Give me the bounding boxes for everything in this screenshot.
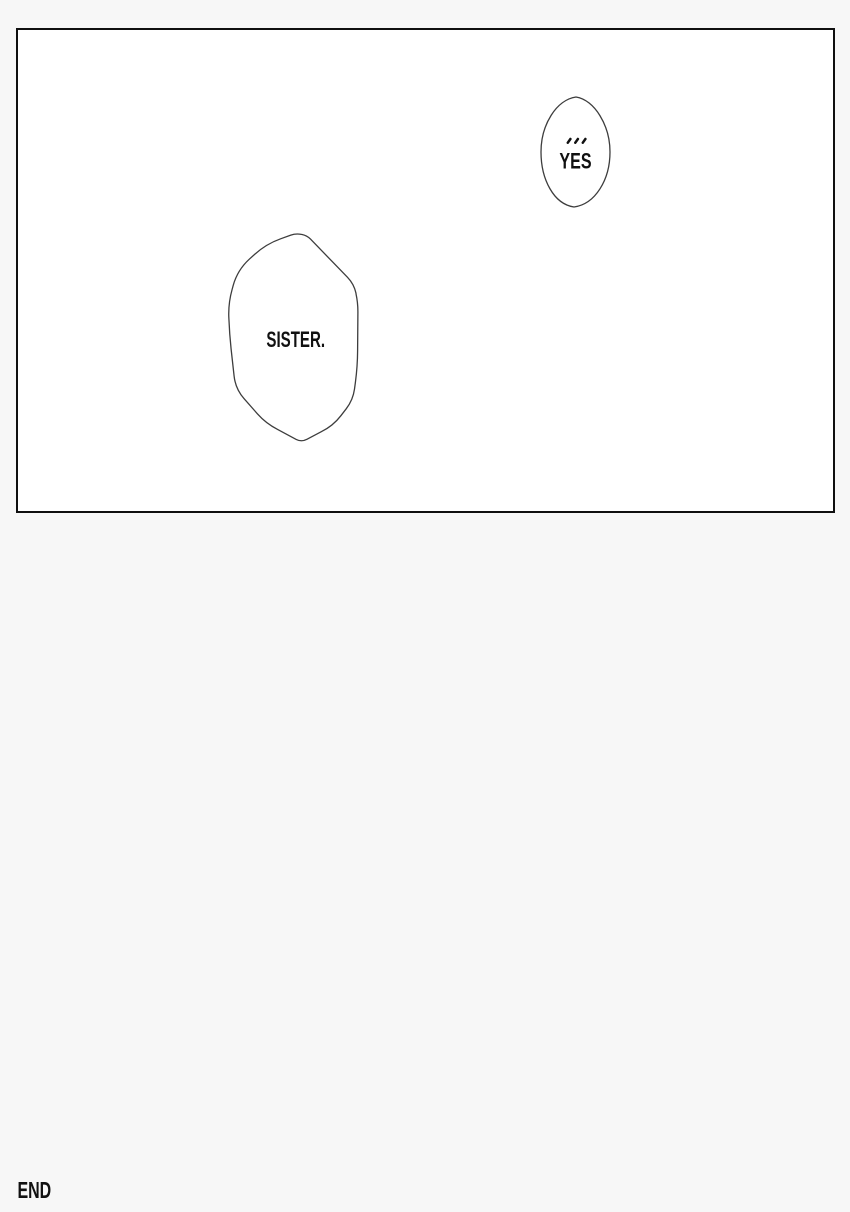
svg-text:END: END: [18, 1178, 52, 1204]
svg-text:SISTER.: SISTER.: [266, 328, 325, 353]
svg-text:YES: YES: [559, 150, 591, 174]
